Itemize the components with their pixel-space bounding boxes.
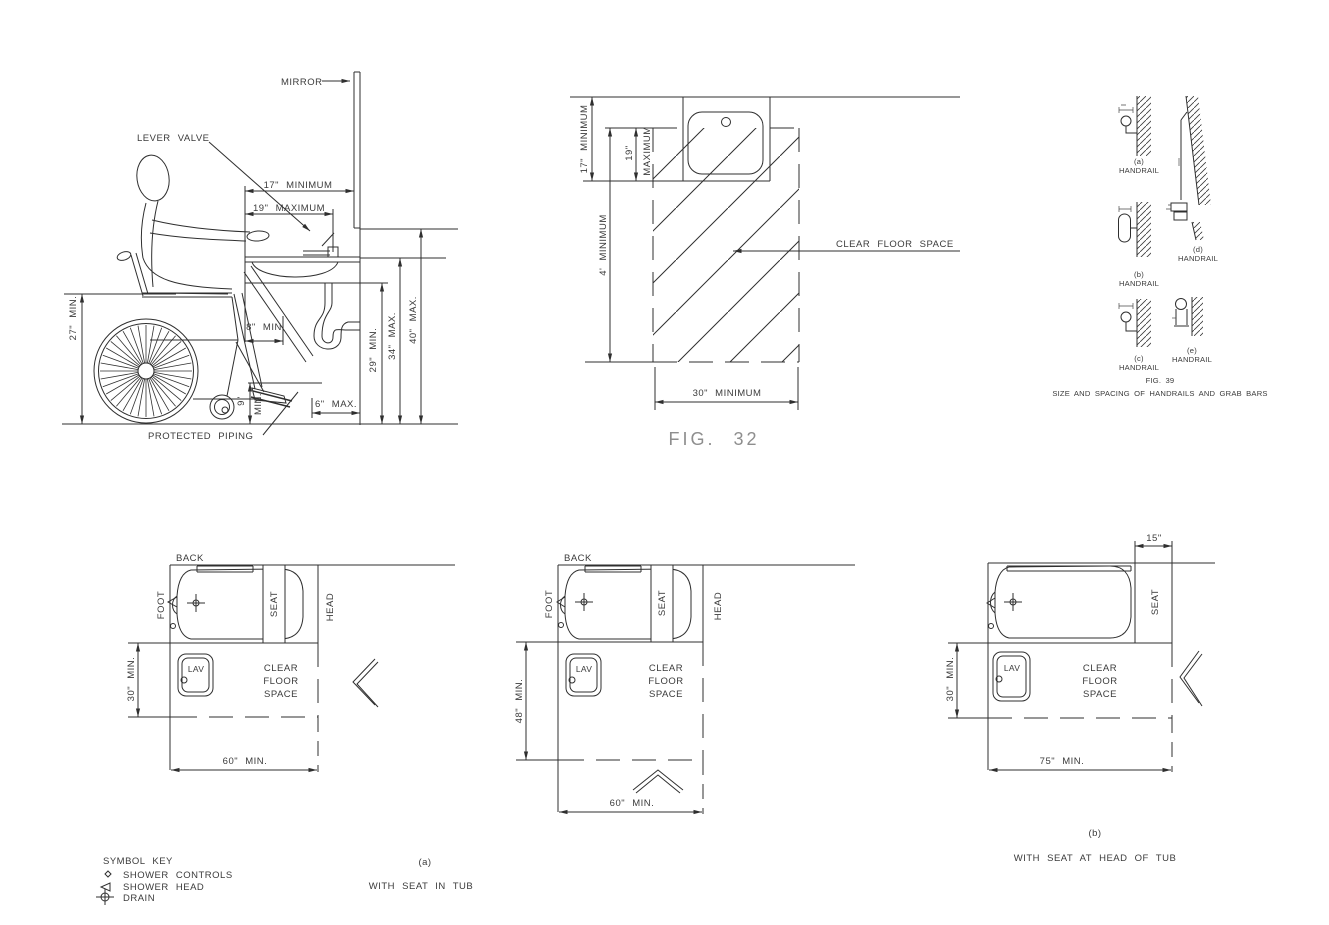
- push-handle: [116, 250, 132, 262]
- approach-chevron: [353, 659, 378, 707]
- plan-dim-30-label: 30" MINIMUM: [693, 388, 762, 399]
- cfs-line3: SPACE: [1083, 689, 1117, 700]
- cfs-line2: FLOOR: [1082, 676, 1117, 687]
- lavatory-section: [244, 233, 388, 362]
- clear-floor-space-area: [653, 128, 799, 362]
- hand: [247, 230, 270, 242]
- cfs-line2: FLOOR: [648, 676, 683, 687]
- dim-19-label: 19" MAXIMUM: [253, 203, 325, 214]
- caption-b: (b) WITH SEAT AT HEAD OF TUB: [1014, 828, 1177, 864]
- handrail-section: [1121, 312, 1131, 322]
- drain-symbol: [96, 889, 114, 905]
- caption-a-tag: (a): [418, 857, 431, 868]
- dim-15-label: 15": [1146, 533, 1161, 544]
- detail-a-label: HANDRAIL: [1119, 166, 1159, 175]
- fig39-caption-line1: FIG. 39: [1146, 376, 1175, 385]
- dim-48-label: 48" MIN.: [514, 679, 525, 724]
- caption-a-text: WITH SEAT IN TUB: [369, 881, 473, 892]
- seat-label: SEAT: [1150, 589, 1161, 615]
- dim-34-label: 34" MAX.: [387, 312, 398, 360]
- caption-a: (a) WITH SEAT IN TUB: [369, 857, 473, 892]
- handrail-section: [1121, 116, 1131, 126]
- symbol-key-title: SYMBOL KEY: [103, 856, 173, 867]
- protected-piping-label: PROTECTED PIPING: [148, 431, 253, 442]
- detail-c-tag: (c): [1134, 354, 1144, 363]
- fig32-plan-diagram: 17" MINIMUM 19" MAXIMUM 4' MINIMUM 30" M…: [570, 97, 960, 449]
- protective-panel: [244, 266, 313, 362]
- plan-dim-19-max-label: MAXIMUM: [642, 126, 653, 175]
- shower-controls-symbol: [105, 871, 111, 877]
- detail-e-tag: (e): [1187, 346, 1197, 355]
- symbol-key-shower-controls-label: SHOWER CONTROLS: [123, 870, 233, 881]
- detail-d-tag: (d): [1193, 245, 1203, 254]
- symbol-key-shower-head-label: SHOWER HEAD: [123, 882, 204, 893]
- head-label: HEAD: [325, 593, 336, 621]
- mirror-label: MIRROR: [281, 77, 323, 88]
- lav-label: LAV: [576, 664, 592, 674]
- dim-9-label: 9": [236, 396, 247, 406]
- cfs-line1: CLEAR: [264, 663, 298, 674]
- dim-60-label: 60" MIN.: [223, 756, 268, 767]
- drawing-svg: MIRROR: [0, 0, 1329, 925]
- dim-27-label: 27" MIN.: [68, 296, 79, 341]
- dim-29-label: 29" MIN.: [368, 328, 379, 373]
- symbol-key: SYMBOL KEY SHOWER CONTROLS SHOWER HEAD D…: [96, 856, 233, 905]
- drain-symbol: [187, 594, 205, 612]
- wheel-spokes: [100, 325, 192, 417]
- head-label: HEAD: [713, 592, 724, 620]
- mirror: [354, 72, 360, 425]
- detail-a-tag: (a): [1134, 157, 1144, 166]
- handrail-detail-e: (e) HANDRAIL: [1172, 297, 1212, 364]
- seat-label: SEAT: [657, 590, 668, 616]
- fig39-caption-line2: SIZE AND SPACING OF HANDRAILS AND GRAB B…: [1052, 389, 1267, 398]
- fig32-caption: FIG. 32: [668, 429, 759, 449]
- cfs-line3: SPACE: [264, 689, 298, 700]
- handrail-detail-d: (d) HANDRAIL: [1166, 96, 1218, 263]
- fig32-elevation-diagram: MIRROR: [62, 72, 458, 442]
- detail-d-label: HANDRAIL: [1178, 254, 1218, 263]
- handrail-detail-b: (b) HANDRAIL: [1119, 202, 1160, 288]
- dim-30-label: 30" MIN.: [126, 657, 137, 702]
- plan-dim-19-label: 19": [624, 145, 635, 160]
- drain-symbol: [1004, 593, 1022, 611]
- back-label: BACK: [564, 553, 592, 564]
- back-label: BACK: [176, 553, 204, 564]
- dim-8-label: 8" MIN: [246, 322, 282, 333]
- approach-chevron: [633, 770, 683, 793]
- lav-label: LAV: [188, 664, 204, 674]
- lav-sink: [178, 654, 213, 696]
- dim-30-label: 30" MIN.: [945, 657, 956, 702]
- cfs-line1: CLEAR: [1083, 663, 1117, 674]
- handrail-section: [1176, 299, 1187, 310]
- shower-controls-symbol: [171, 624, 176, 629]
- shower-controls-symbol: [989, 624, 994, 629]
- foot-label: FOOT: [544, 590, 555, 618]
- dim-17-label: 17" MINIMUM: [264, 180, 333, 191]
- dim-40-label: 40" MAX.: [408, 296, 419, 344]
- cfs-line2: FLOOR: [263, 676, 298, 687]
- clear-floor-space-label: CLEAR FLOOR SPACE: [836, 239, 954, 250]
- handrail-detail-c: (c) HANDRAIL: [1119, 299, 1159, 372]
- detail-b-tag: (b): [1134, 270, 1144, 279]
- foot-label: FOOT: [156, 591, 167, 619]
- handrail-detail-a: (a) HANDRAIL: [1119, 96, 1159, 175]
- drain-symbol: [575, 593, 593, 611]
- shower-controls-symbol: [559, 623, 564, 628]
- caption-b-text: WITH SEAT AT HEAD OF TUB: [1014, 853, 1177, 864]
- faucet-hole: [722, 118, 731, 127]
- seat-label: SEAT: [269, 591, 280, 617]
- lav-sink: [566, 654, 601, 696]
- approach-chevron: [1180, 651, 1202, 706]
- handrail-section: [1171, 203, 1187, 211]
- lav-sink: [993, 652, 1030, 701]
- dim-60-label: 60" MIN.: [610, 798, 655, 809]
- plan-dim-17-label: 17" MINIMUM: [579, 105, 590, 174]
- detail-e-label: HANDRAIL: [1172, 355, 1212, 364]
- tub-diagram-b: 15" SEAT LAV CLEAR FLOOR: [945, 533, 1215, 772]
- drain-trap-piping: [314, 283, 360, 349]
- dim-6-label: 6" MAX.: [315, 399, 357, 410]
- cfs-line1: CLEAR: [649, 663, 683, 674]
- technical-drawing-sheet: MIRROR: [0, 0, 1329, 925]
- tub-diagram-a1: BACK SEAT FOOT HEAD LAV: [126, 553, 455, 772]
- dim-9-min-label: MIN.: [253, 393, 264, 415]
- detail-c-label: HANDRAIL: [1119, 363, 1159, 372]
- handrail-section: [1119, 214, 1131, 242]
- dim-75-label: 75" MIN.: [1040, 756, 1085, 767]
- detail-b-label: HANDRAIL: [1119, 279, 1159, 288]
- fig39-handrail-details: (a) HANDRAIL (b) HANDRAIL (c) HANDRAIL: [1052, 96, 1267, 398]
- lever-valve-label: LEVER VALVE: [137, 133, 210, 144]
- tub-diagram-a2: BACK SEAT FOOT HEAD LAV: [514, 553, 855, 814]
- caption-b-tag: (b): [1088, 828, 1101, 839]
- plan-dim-4ft-label: 4' MINIMUM: [598, 214, 609, 275]
- lav-label: LAV: [1004, 663, 1020, 673]
- symbol-key-drain-label: DRAIN: [123, 893, 155, 904]
- cfs-line3: SPACE: [649, 689, 683, 700]
